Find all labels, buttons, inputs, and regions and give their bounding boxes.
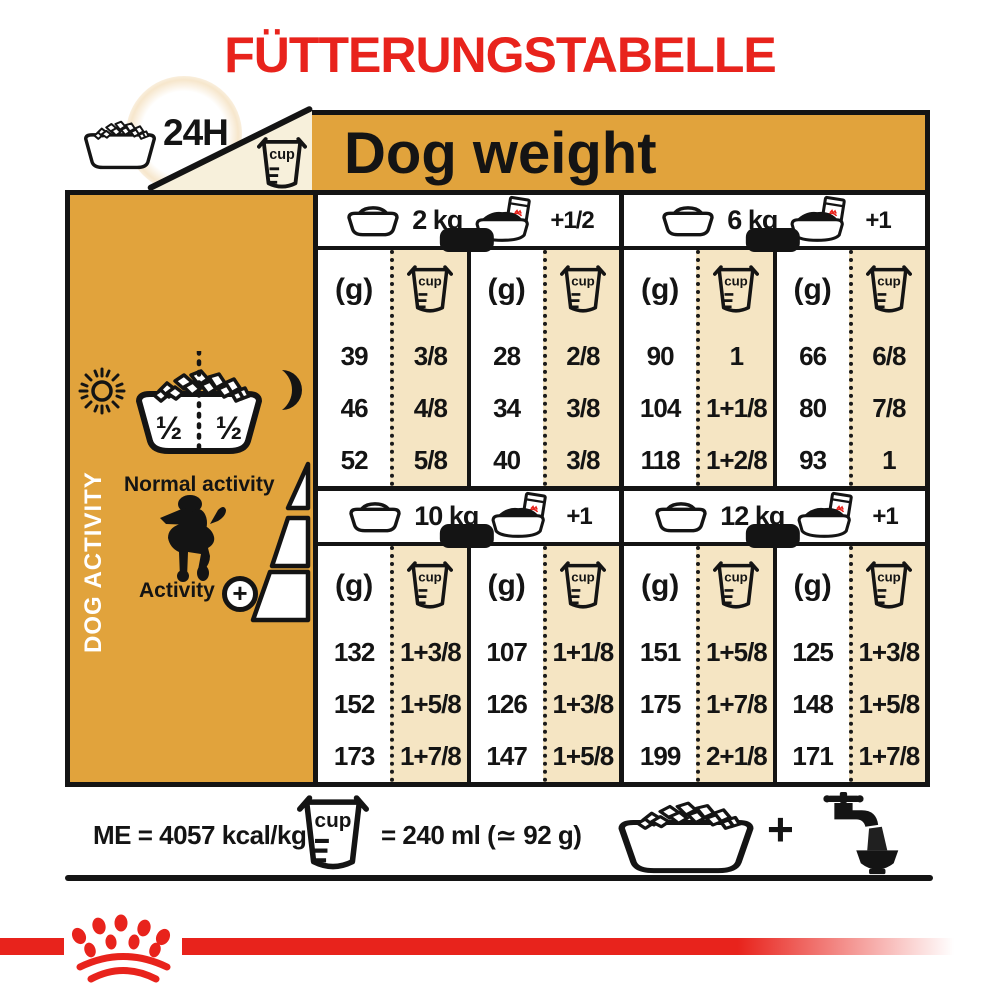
tab-marker — [745, 228, 799, 252]
value-cell: 151 — [624, 626, 696, 678]
value-cell: 199 — [624, 730, 696, 782]
value-cell: 3/8 — [394, 330, 466, 382]
value-cell: 171 — [777, 730, 849, 782]
sidebar-title: DOG ACTIVITY — [80, 453, 114, 671]
grams-header: (g) — [777, 250, 849, 330]
empty-bowl-icon — [345, 499, 405, 535]
grams-header: (g) — [471, 546, 543, 626]
value-cell: 1 — [700, 330, 772, 382]
value-cell: 80 — [777, 382, 849, 434]
dog-weight-band: Dog weight — [312, 110, 930, 192]
value-cell: 1+7/8 — [700, 678, 772, 730]
footer-red-bar-right — [182, 938, 954, 955]
weight-group-2kg: 2 kg +1/2 (g) 39 46 52 — [318, 195, 619, 486]
me-kcal-label: ME = 4057 kcal/kg — [93, 820, 306, 851]
mixed-food-panel: (g) 125 148 171 1+3/8 1+5/8 1+7/8 — [773, 546, 926, 782]
value-cell: 1+3/8 — [394, 626, 466, 678]
grams-column: (g) 107 126 147 — [471, 546, 543, 782]
cup-column: 1+1/8 1+3/8 1+5/8 — [543, 546, 619, 782]
cup-header — [853, 250, 925, 330]
weight-group-header: 2 kg +1/2 — [318, 195, 619, 250]
value-cell: 125 — [777, 626, 849, 678]
value-cell: 6/8 — [853, 330, 925, 382]
cup-equivalence-label: = 240 ml (≃ 92 g) — [381, 820, 581, 851]
value-cell: 173 — [318, 730, 390, 782]
grams-header: (g) — [624, 250, 696, 330]
tab-marker — [439, 228, 493, 252]
dry-food-panel: (g) 151 175 199 1+5/8 1+7/8 2+1/8 — [624, 546, 773, 782]
grams-column: (g) 39 46 52 — [318, 250, 390, 486]
grams-column: (g) 151 175 199 — [624, 546, 696, 782]
value-cell: 1+1/8 — [547, 626, 619, 678]
value-cell: 147 — [471, 730, 543, 782]
measuring-cup-icon — [297, 794, 369, 874]
value-cell: 104 — [624, 382, 696, 434]
half-left-label: ½ — [156, 410, 183, 446]
activity-label: Activity — [139, 579, 215, 603]
cup-column: 1 1+1/8 1+2/8 — [696, 250, 772, 486]
value-cell: 1+5/8 — [394, 678, 466, 730]
value-cell: 39 — [318, 330, 390, 382]
value-cell: 132 — [318, 626, 390, 678]
cup-header — [547, 250, 619, 330]
empty-bowl-icon — [658, 203, 718, 239]
value-cell: 28 — [471, 330, 543, 382]
measuring-cup-icon — [713, 264, 759, 316]
footer-red-bar-left — [0, 938, 64, 955]
cup-header — [547, 546, 619, 626]
weight-group-header: 10 kg +1 — [318, 491, 619, 546]
tab-marker — [439, 524, 493, 548]
value-cell: 107 — [471, 626, 543, 678]
measuring-cup-icon — [866, 264, 912, 316]
wet-add-label: +1 — [865, 207, 890, 235]
measuring-cup-icon — [866, 560, 912, 612]
plus-sign: + — [767, 802, 794, 856]
grams-header: (g) — [624, 546, 696, 626]
value-cell: 46 — [318, 382, 390, 434]
measuring-cup-icon — [560, 560, 606, 612]
grams-column: (g) 132 152 173 — [318, 546, 390, 782]
cup-header — [394, 546, 466, 626]
mixed-food-panel: (g) 107 126 147 1+1/8 1+3/8 1+5/8 — [467, 546, 620, 782]
value-cell: 66 — [777, 330, 849, 382]
wet-pouch-bowl-icon — [793, 490, 863, 540]
cup-column: 1+5/8 1+7/8 2+1/8 — [696, 546, 772, 782]
grams-header: (g) — [471, 250, 543, 330]
mixed-food-panel: (g) 28 34 40 2/8 3/8 3/8 — [467, 250, 620, 486]
dog-activity-sidebar: ½ ½ DOG ACTIVITY Normal activity Ac — [65, 190, 313, 787]
sun-icon — [78, 367, 126, 415]
weight-group-12kg: 12 kg +1 (g) 151 175 199 — [619, 491, 925, 782]
value-cell: 3/8 — [547, 434, 619, 486]
value-cell: 1+5/8 — [547, 730, 619, 782]
royal-canin-crown-icon — [66, 900, 181, 990]
value-cell: 1+1/8 — [700, 382, 772, 434]
empty-bowl-icon — [343, 203, 403, 239]
feeding-table: 2 kg +1/2 (g) 39 46 52 — [313, 190, 930, 787]
page-title: FÜTTERUNGSTABELLE — [0, 26, 1000, 84]
measuring-cup-icon — [560, 264, 606, 316]
grams-header: (g) — [777, 546, 849, 626]
value-cell: 4/8 — [394, 382, 466, 434]
value-cell: 3/8 — [547, 382, 619, 434]
dog-weight-label: Dog weight — [344, 117, 657, 191]
daily-ration-label: 24H — [163, 112, 228, 154]
wet-add-label: +1 — [872, 503, 897, 531]
cup-header — [853, 546, 925, 626]
legend-row: ME = 4057 kcal/kg = 240 ml (≃ 92 g) + — [65, 792, 933, 876]
wet-add-label: +1/2 — [550, 207, 593, 235]
value-cell: 148 — [777, 678, 849, 730]
value-cell: 40 — [471, 434, 543, 486]
dry-food-panel: (g) 132 152 173 1+3/8 1+5/8 1+7/8 — [318, 546, 467, 782]
cup-header — [700, 546, 772, 626]
value-cell: 152 — [318, 678, 390, 730]
grams-column: (g) 90 104 118 — [624, 250, 696, 486]
value-cell: 2+1/8 — [700, 730, 772, 782]
activity-ramp-icon — [250, 460, 314, 630]
cup-header — [394, 250, 466, 330]
value-cell: 90 — [624, 330, 696, 382]
grams-column: (g) 125 148 171 — [777, 546, 849, 782]
value-cell: 126 — [471, 678, 543, 730]
value-cell: 1+3/8 — [547, 678, 619, 730]
weight-group-6kg: 6 kg +1 (g) 90 104 118 — [619, 195, 925, 486]
value-cell: 93 — [777, 434, 849, 486]
value-cell: 1+7/8 — [853, 730, 925, 782]
measuring-cup-icon — [407, 264, 453, 316]
tab-marker — [745, 524, 799, 548]
feeding-table-sheet: FÜTTERUNGSTABELLE 24H Dog weight ½ ½ — [0, 0, 1000, 1000]
table-section-top: 2 kg +1/2 (g) 39 46 52 — [318, 195, 925, 486]
cup-header — [700, 250, 772, 330]
value-cell: 34 — [471, 382, 543, 434]
half-portion-bowl-icon: ½ ½ — [125, 351, 273, 461]
weight-group-10kg: 10 kg +1 (g) 132 152 173 — [318, 491, 619, 782]
grams-header: (g) — [318, 250, 390, 330]
table-section-bottom: 10 kg +1 (g) 132 152 173 — [318, 486, 925, 782]
value-cell: 118 — [624, 434, 696, 486]
kibble-bowl-icon — [611, 798, 761, 874]
cup-column: 3/8 4/8 5/8 — [390, 250, 466, 486]
grams-column: (g) 66 80 93 — [777, 250, 849, 486]
dry-food-panel: (g) 39 46 52 3/8 4/8 5/8 — [318, 250, 467, 486]
value-cell: 52 — [318, 434, 390, 486]
measuring-cup-icon — [407, 560, 453, 612]
empty-bowl-icon — [651, 499, 711, 535]
grams-column: (g) 28 34 40 — [471, 250, 543, 486]
weight-group-header: 6 kg +1 — [624, 195, 925, 250]
grams-header: (g) — [318, 546, 390, 626]
cup-column: 2/8 3/8 3/8 — [543, 250, 619, 486]
divider-line — [65, 875, 933, 881]
cup-column: 1+3/8 1+5/8 1+7/8 — [849, 546, 925, 782]
value-cell: 5/8 — [394, 434, 466, 486]
value-cell: 1+3/8 — [853, 626, 925, 678]
measuring-cup-icon — [257, 137, 307, 191]
value-cell: 1+2/8 — [700, 434, 772, 486]
kibble-bowl-icon — [80, 116, 160, 172]
value-cell: 2/8 — [547, 330, 619, 382]
wet-pouch-bowl-icon — [487, 490, 557, 540]
cup-column: 1+3/8 1+5/8 1+7/8 — [390, 546, 466, 782]
half-right-label: ½ — [216, 410, 243, 446]
mixed-food-panel: (g) 66 80 93 6/8 7/8 1 — [773, 250, 926, 486]
weight-group-header: 12 kg +1 — [624, 491, 925, 546]
value-cell: 175 — [624, 678, 696, 730]
value-cell: 1+5/8 — [853, 678, 925, 730]
water-tap-icon — [815, 792, 903, 876]
dry-food-panel: (g) 90 104 118 1 1+1/8 1+2/8 — [624, 250, 773, 486]
moon-icon — [270, 367, 308, 413]
measuring-cup-icon — [713, 560, 759, 612]
value-cell: 1+5/8 — [700, 626, 772, 678]
value-cell: 1+7/8 — [394, 730, 466, 782]
value-cell: 1 — [853, 434, 925, 486]
value-cell: 7/8 — [853, 382, 925, 434]
poodle-icon — [152, 494, 226, 582]
cup-column: 6/8 7/8 1 — [849, 250, 925, 486]
wet-add-label: +1 — [566, 503, 591, 531]
